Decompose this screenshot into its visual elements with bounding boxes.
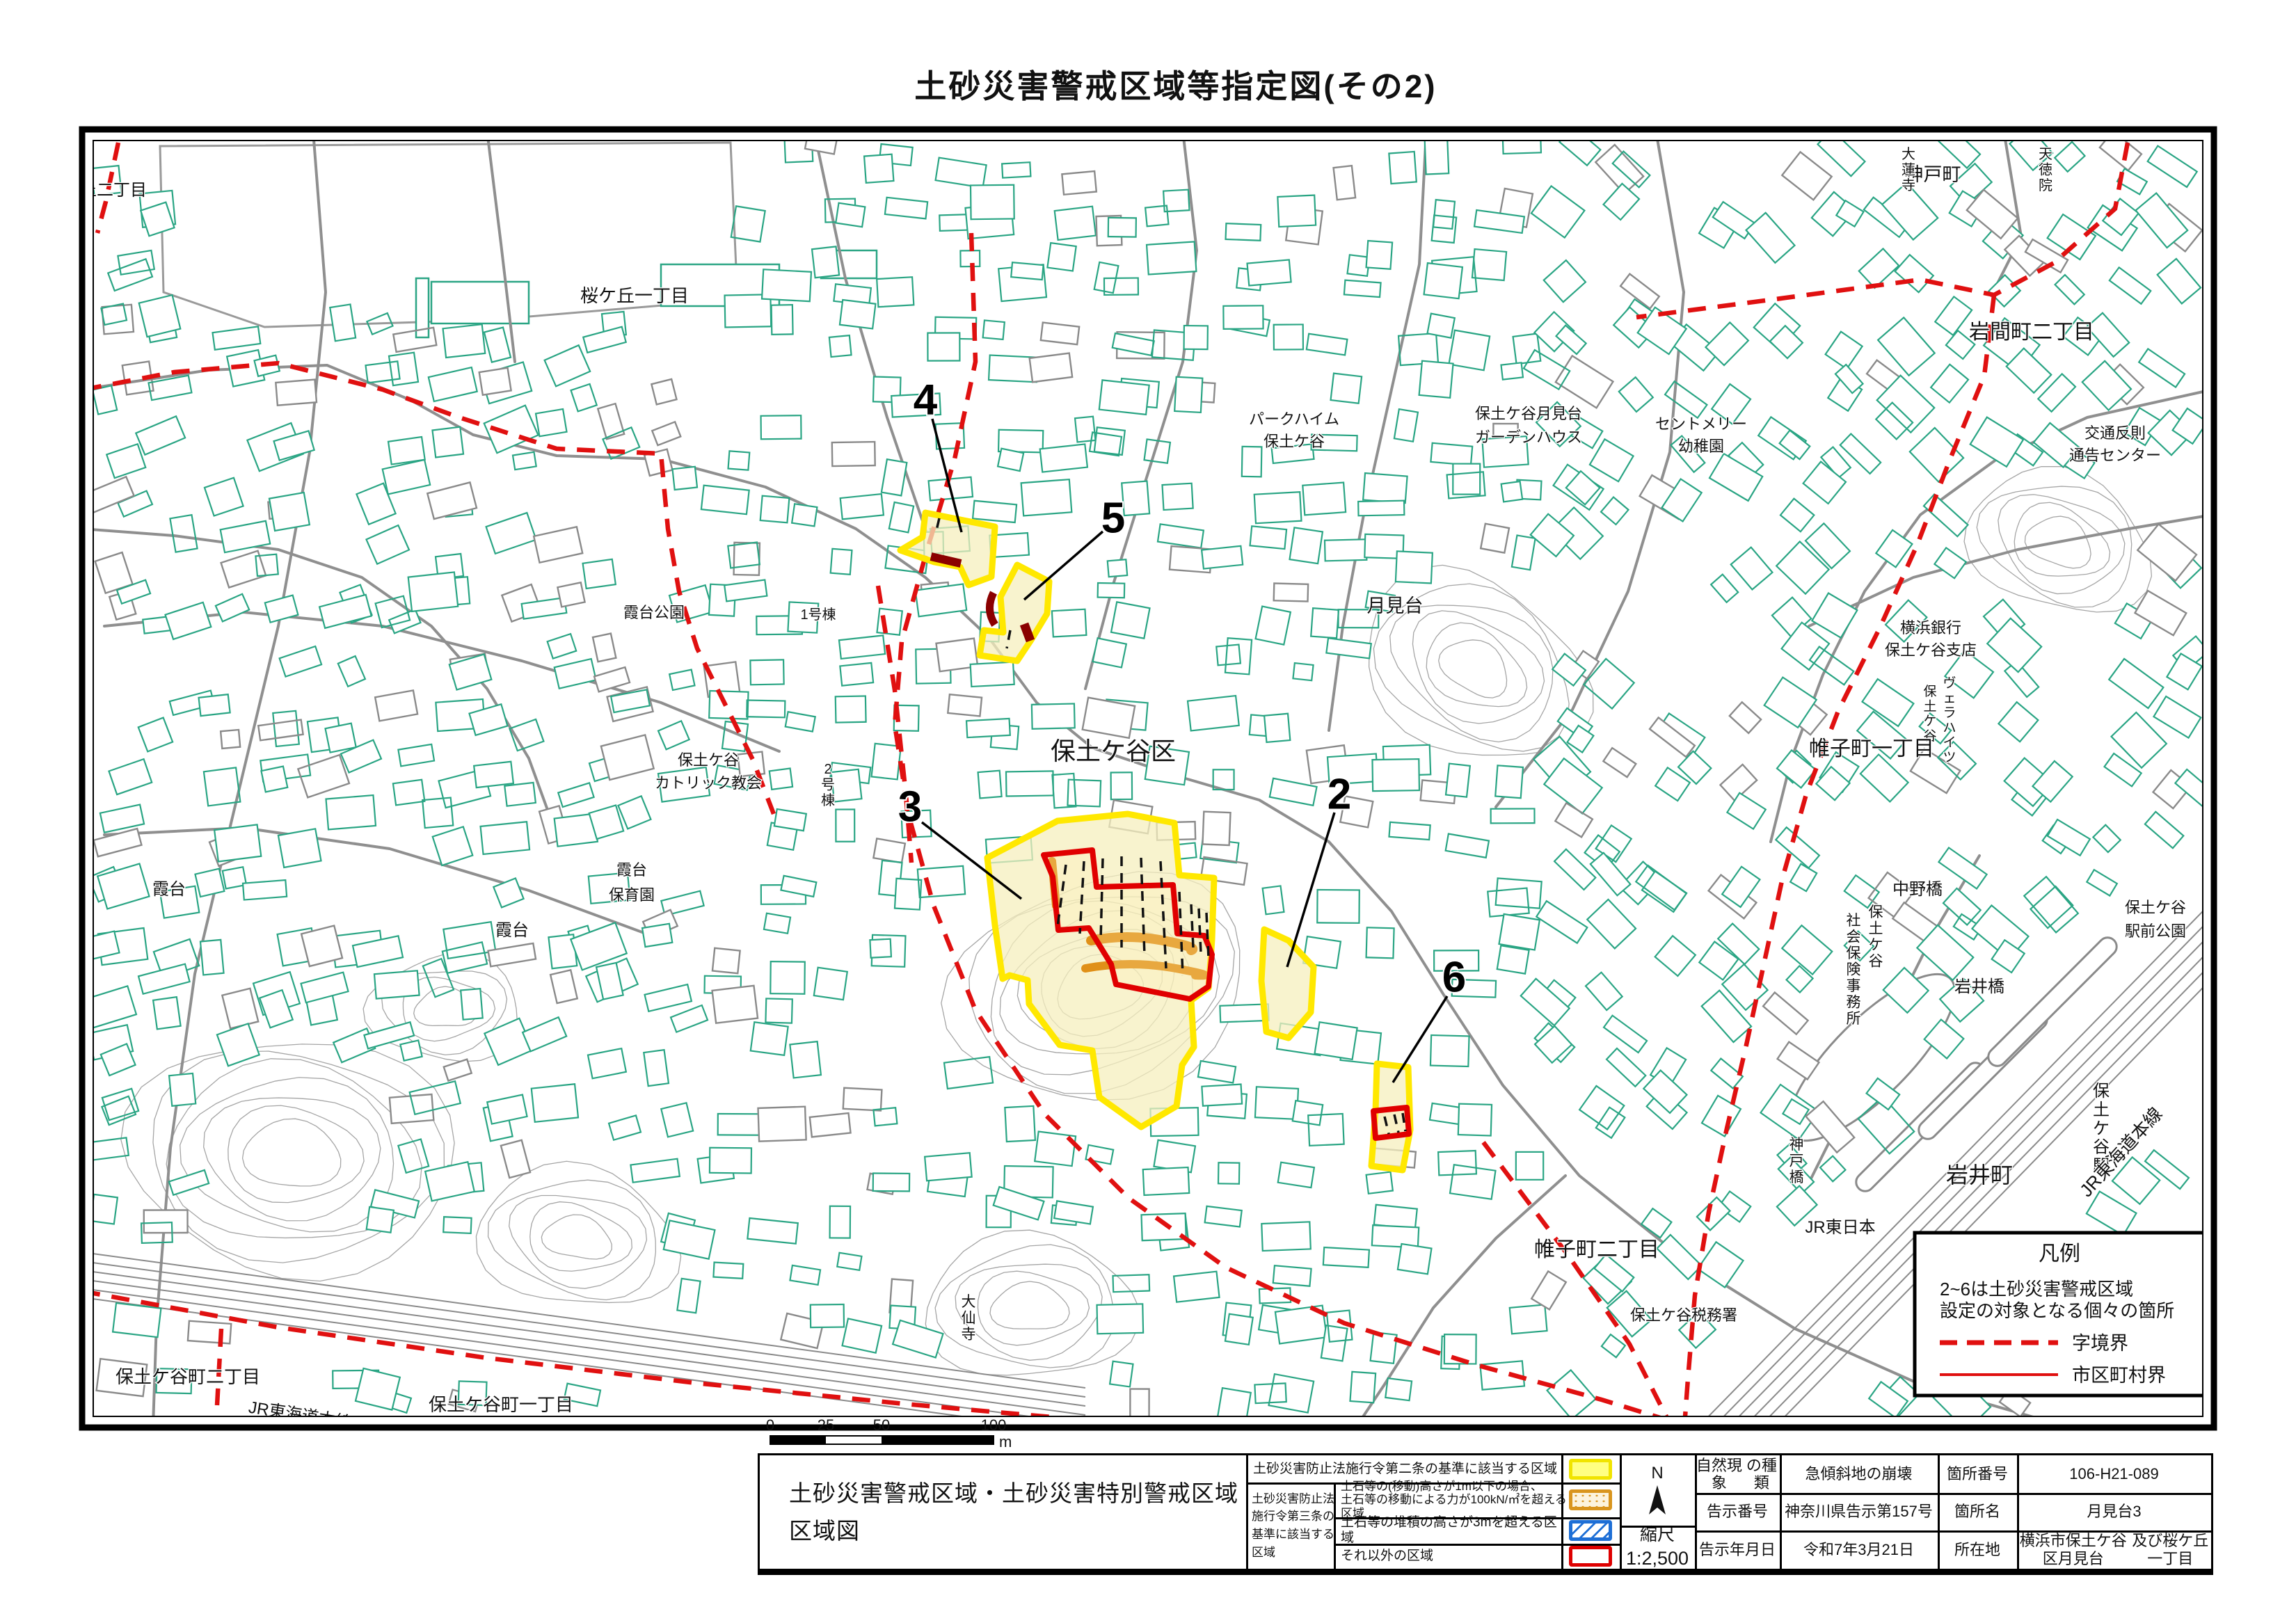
scale-bar-tick: 50 xyxy=(873,1416,890,1434)
map-label: 霞台 xyxy=(152,880,186,899)
special-warning-mark xyxy=(1024,624,1030,641)
orange-zone-swatch xyxy=(1569,1489,1612,1510)
legend-row4-text: それ以外の区域 xyxy=(1334,1544,1568,1569)
legend-entry-label: 市区町村界 xyxy=(2072,1365,2166,1386)
north-cell: N xyxy=(1620,1455,1695,1526)
yellow-zone-swatch xyxy=(1569,1459,1612,1480)
scale-bar-tick: 100 xyxy=(981,1416,1007,1434)
zone-number-6: 6 xyxy=(1442,954,1466,1002)
legend-box-note: 2~6は土砂災害警戒区域 xyxy=(1940,1279,2133,1300)
legend-row4-swatch xyxy=(1561,1544,1620,1569)
scale-label: 縮尺 xyxy=(1640,1525,1675,1545)
legend-row1-swatch xyxy=(1561,1455,1620,1482)
map-label: 桜ケ丘一丁目 xyxy=(580,285,689,306)
footer-map-title-line2: 区域図 xyxy=(789,1518,860,1544)
divider xyxy=(1695,1455,1697,1569)
map-label: 大蓮寺 xyxy=(1902,146,1915,193)
map-label: 岩井橋 xyxy=(1954,977,2004,996)
divider xyxy=(1620,1526,1695,1528)
legend-row2-swatch xyxy=(1561,1482,1620,1517)
divider xyxy=(1780,1455,1782,1569)
special-warning-special-6 xyxy=(1373,1108,1409,1138)
scale-bar-tick: 0 xyxy=(766,1416,774,1434)
info-label-phenomenon: 自然現象の種類 xyxy=(1695,1455,1780,1493)
info-label-site-number: 箇所番号 xyxy=(1938,1455,2017,1493)
blue-zone-swatch xyxy=(1569,1520,1612,1541)
zone-number-5: 5 xyxy=(1101,495,1125,543)
map-label: 大仙寺 xyxy=(962,1294,976,1343)
map-label: 保土ケ谷 xyxy=(1869,904,1883,970)
zone-number-4: 4 xyxy=(914,376,938,424)
legend-box-title: 凡例 xyxy=(2039,1242,2080,1265)
north-arrow-icon xyxy=(1643,1484,1671,1517)
scale-bar-unit: m xyxy=(999,1433,1012,1450)
legend-row2-lines: 土石等の(移動)高さが1m以下の場合、土石等の移動による力が100kN/㎡を超え… xyxy=(1341,1480,1568,1521)
map-label: 岩間町二丁目 xyxy=(1969,321,2094,344)
map-label: JR東日本 xyxy=(1805,1218,1875,1237)
map-content: 23456丘二丁目桜ケ丘一丁目パークハイム保土ケ谷保土ケ谷月見台ガーデンハウス月… xyxy=(80,123,2216,1433)
footer-map-title: 土砂災害警戒区域・土砂災害特別警戒区域 区域図 xyxy=(760,1455,1275,1569)
divider xyxy=(1695,1493,2211,1495)
map-label: 丘二丁目 xyxy=(80,181,147,200)
map-label: 帷子町一丁目 xyxy=(1809,737,1934,760)
divider xyxy=(2017,1455,2019,1569)
divider xyxy=(1620,1455,1622,1569)
map-label: 保土ケ谷町一丁目 xyxy=(429,1394,573,1415)
info-label-notice-number: 告示番号 xyxy=(1695,1493,1780,1530)
divider xyxy=(1246,1482,1620,1485)
map-canvas: 23456丘二丁目桜ケ丘一丁目パークハイム保土ケ谷保土ケ谷月見台ガーデンハウス月… xyxy=(0,0,2296,1623)
map-label: 保土ケ谷 xyxy=(1923,684,1936,744)
map-label: 霞台 xyxy=(495,921,529,940)
red-zone-swatch xyxy=(1569,1546,1612,1567)
info-label-notice-date: 告示年月日 xyxy=(1695,1530,1780,1569)
map-label: 岩井町 xyxy=(1946,1162,2013,1188)
divider xyxy=(1334,1482,1336,1569)
divider xyxy=(1334,1517,1620,1519)
map-label: 中野橋 xyxy=(1892,880,1943,899)
legend-row3-text: 土石等の堆積の高さが3mを超える区域 xyxy=(1334,1517,1568,1544)
divider xyxy=(1246,1455,1248,1569)
scale-bar-tick: 25 xyxy=(818,1416,834,1434)
zone-number-3: 3 xyxy=(898,783,922,831)
scale-bar: 02550100m xyxy=(766,1416,1012,1450)
info-value-site-number: 106-H21-089 xyxy=(2017,1455,2211,1493)
scale-cell: 縮尺 1:2,500 xyxy=(1620,1526,1695,1569)
map-label: ヴェラハイツ xyxy=(1943,675,1956,765)
map-label: 神戸橋 xyxy=(1789,1137,1804,1185)
divider xyxy=(1561,1455,1563,1569)
legend-row1-text: 土砂災害防止法施行令第二条の基準に該当する区域 xyxy=(1246,1455,1568,1482)
legend-row2-text: 土石等の(移動)高さが1m以下の場合、土石等の移動による力が100kN/㎡を超え… xyxy=(1334,1482,1568,1517)
map-label: 1号棟 xyxy=(800,607,836,623)
legend-row3-swatch xyxy=(1561,1517,1620,1544)
info-value-notice-date: 令和7年3月21日 xyxy=(1780,1530,1938,1569)
zone-number-2: 2 xyxy=(1328,771,1351,819)
divider xyxy=(1334,1544,1620,1546)
map-label: 保土ケ谷区 xyxy=(1051,737,1176,765)
info-value-location: 横浜市保土ケ谷区月見台及び桜ケ丘一丁目 xyxy=(2017,1530,2211,1569)
footer-map-title-line1: 土砂災害警戒区域・土砂災害特別警戒区域 xyxy=(789,1480,1238,1507)
map-label: 帷子町二丁目 xyxy=(1534,1238,1659,1261)
map-legend-box: 凡例2~6は土砂災害警戒区域設定の対象となる個々の箇所字境界市区町村界 xyxy=(1915,1233,2204,1396)
map-label: 天徳院 xyxy=(2039,147,2052,193)
map-label: 保土ケ谷税務署 xyxy=(1630,1306,1737,1324)
legend-box-note: 設定の対象となる個々の箇所 xyxy=(1940,1300,2174,1321)
info-label-site-name: 箇所名 xyxy=(1938,1493,2017,1530)
footer-table: 土砂災害警戒区域・土砂災害特別警戒区域 区域図 土砂災害防止法施行令第二条の基準… xyxy=(758,1453,2213,1575)
divider xyxy=(1938,1455,1940,1569)
info-label-location: 所在地 xyxy=(1938,1530,2017,1569)
info-value-notice-number: 神奈川県告示第157号 xyxy=(1780,1493,1938,1530)
scale-value: 1:2,500 xyxy=(1626,1548,1689,1569)
map-label: 霞台公園 xyxy=(623,604,685,621)
info-value-phenomenon: 急傾斜地の崩壊 xyxy=(1780,1455,1938,1493)
divider xyxy=(1695,1530,2211,1533)
legend-group-label: 土砂災害防止法施行令第三条の基準に該当する区域 xyxy=(1246,1482,1339,1569)
map-label: 社会保険事務所 xyxy=(1847,913,1861,1027)
map-label: 月見台 xyxy=(1367,595,1424,616)
north-label: N xyxy=(1651,1464,1663,1483)
info-value-site-name: 月見台3 xyxy=(2017,1493,2211,1530)
legend-entry-label: 字境界 xyxy=(2072,1333,2128,1354)
map-label: 保土ケ谷町二丁目 xyxy=(115,1366,260,1387)
